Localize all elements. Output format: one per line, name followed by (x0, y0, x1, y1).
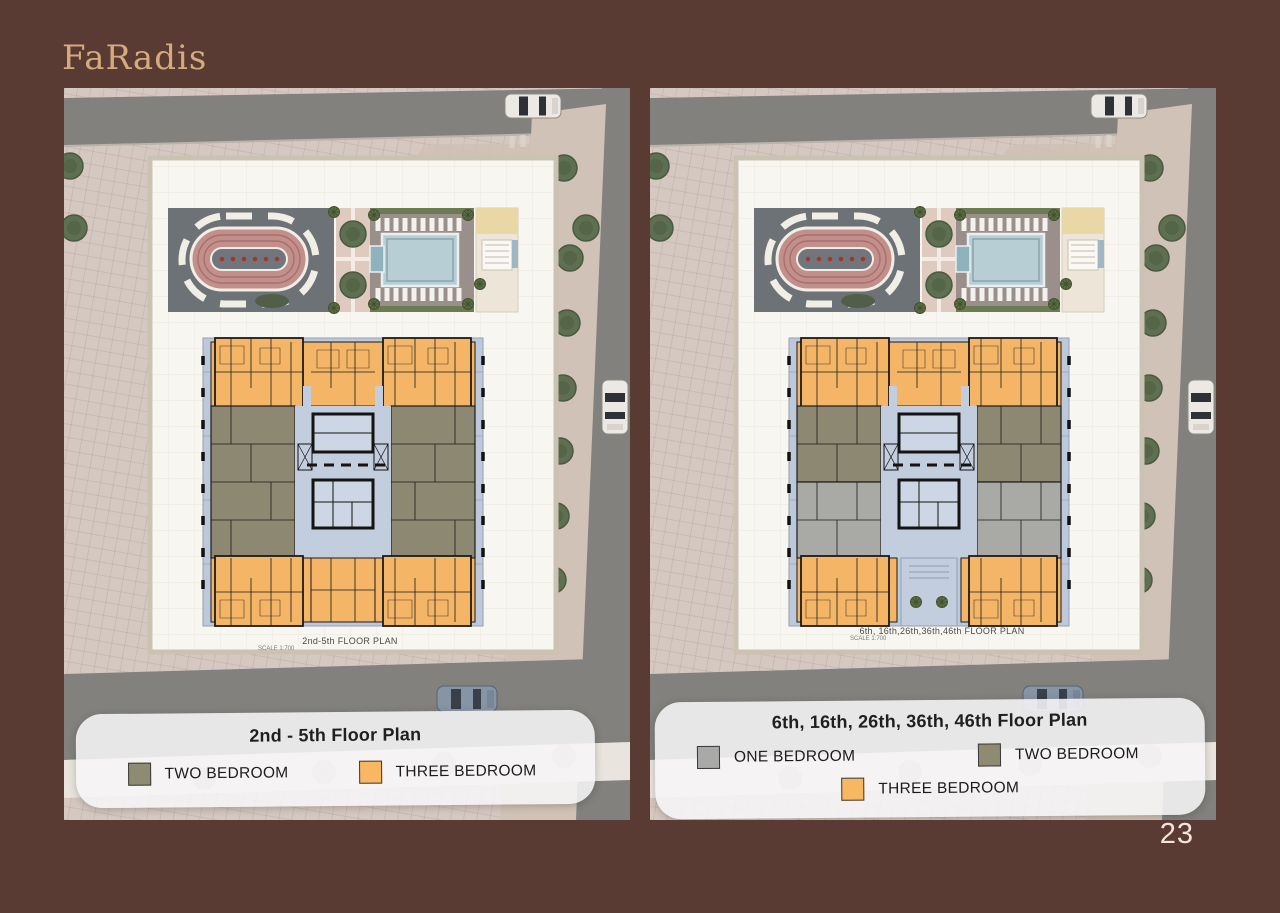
legend-right: 6th, 16th, 26th, 36th, 46th Floor Plan O… (654, 698, 1205, 820)
plan-caption-right: 6th, 16th,26th,36th,46th FLOOR PLAN SCAL… (822, 626, 1062, 643)
plan-caption-scale: SCALE 1:700 (822, 636, 1062, 643)
legend-title-right: 6th, 16th, 26th, 36th, 46th Floor Plan (655, 709, 1205, 735)
legend-item-three-bedroom: THREE BEDROOM (841, 776, 1019, 801)
three-bedroom-swatch (359, 761, 382, 784)
page-number: 23 (1160, 818, 1194, 851)
one-bedroom-swatch (697, 746, 720, 769)
two-bedroom-swatch (128, 763, 151, 786)
legend-item-two-bedroom: TWO BEDROOM (128, 761, 313, 786)
legend-title-left: 2nd - 5th Floor Plan (76, 723, 595, 749)
legend-label: TWO BEDROOM (1015, 745, 1139, 764)
legend-label: THREE BEDROOM (878, 779, 1019, 798)
plan-caption-title: 2nd-5th FLOOR PLAN (230, 636, 470, 646)
legend-label: ONE BEDROOM (734, 747, 855, 766)
legend-item-one-bedroom: ONE BEDROOM (697, 744, 882, 769)
legend-left: 2nd - 5th Floor Plan TWO BEDROOM THREE B… (76, 710, 596, 809)
legend-item-two-bedroom: TWO BEDROOM (978, 742, 1163, 767)
two-bedroom-swatch (978, 743, 1001, 766)
plan-caption-scale: SCALE 1:700 (230, 646, 470, 653)
plan-caption-title: 6th, 16th,26th,36th,46th FLOOR PLAN (822, 626, 1062, 636)
legend-label: THREE BEDROOM (396, 762, 537, 781)
legend-item-three-bedroom: THREE BEDROOM (359, 759, 544, 784)
legend-label: TWO BEDROOM (165, 764, 289, 783)
three-bedroom-swatch (841, 778, 864, 801)
floor-plan-panel-left: 2nd-5th FLOOR PLAN SCALE 1:700 2nd - 5th… (64, 88, 630, 820)
floor-plan-panel-right: 6th, 16th,26th,36th,46th FLOOR PLAN SCAL… (650, 88, 1216, 820)
brand-logo: FaRadis (62, 38, 207, 78)
plan-caption-left: 2nd-5th FLOOR PLAN SCALE 1:700 (230, 636, 470, 653)
